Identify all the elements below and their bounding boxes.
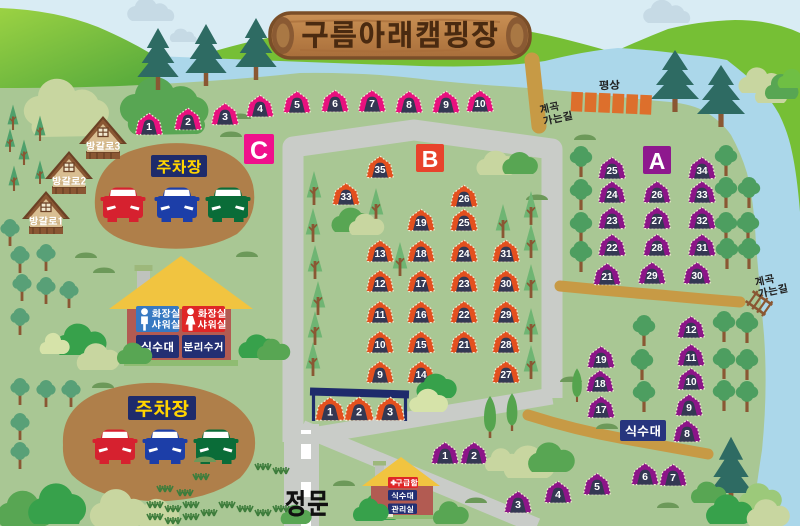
svg-text:26: 26 [458, 194, 470, 205]
svg-text:22: 22 [458, 310, 470, 321]
svg-text:17: 17 [595, 405, 607, 416]
svg-text:11: 11 [686, 353, 697, 364]
svg-text:18: 18 [594, 379, 606, 390]
svg-text:1: 1 [327, 406, 333, 418]
svg-text:19: 19 [415, 218, 427, 229]
svg-text:13: 13 [374, 249, 386, 260]
svg-text:7: 7 [670, 472, 676, 484]
svg-text:27: 27 [651, 216, 663, 227]
svg-text:6: 6 [332, 98, 338, 110]
svg-text:9: 9 [377, 369, 383, 381]
svg-text:10: 10 [374, 340, 386, 351]
svg-text:35: 35 [374, 165, 386, 176]
svg-text:2: 2 [185, 116, 191, 128]
svg-text:5: 5 [594, 481, 600, 493]
svg-text:24: 24 [606, 190, 618, 201]
svg-text:8: 8 [684, 428, 690, 440]
svg-text:10: 10 [474, 99, 486, 110]
svg-text:15: 15 [415, 340, 427, 351]
svg-text:23: 23 [606, 216, 618, 227]
svg-text:9: 9 [686, 402, 692, 414]
svg-text:31: 31 [696, 243, 708, 254]
svg-text:8: 8 [406, 99, 412, 111]
svg-text:A: A [649, 148, 666, 174]
svg-text:28: 28 [500, 340, 512, 351]
svg-text:29: 29 [500, 310, 512, 321]
svg-text:4: 4 [555, 489, 561, 501]
svg-text:11: 11 [375, 310, 386, 321]
svg-text:33: 33 [696, 190, 708, 201]
svg-text:21: 21 [601, 272, 613, 283]
svg-text:2: 2 [356, 406, 362, 418]
svg-text:24: 24 [458, 249, 470, 260]
svg-text:3: 3 [515, 499, 521, 511]
svg-text:9: 9 [443, 99, 449, 111]
svg-text:34: 34 [696, 166, 708, 177]
svg-text:25: 25 [606, 166, 618, 177]
svg-text:30: 30 [691, 271, 703, 282]
svg-text:B: B [422, 146, 439, 172]
svg-text:6: 6 [642, 471, 648, 483]
svg-text:10: 10 [685, 377, 697, 388]
svg-text:7: 7 [369, 98, 375, 110]
svg-text:1: 1 [442, 450, 448, 462]
svg-text:12: 12 [374, 279, 386, 290]
svg-text:2: 2 [471, 450, 477, 462]
svg-text:27: 27 [500, 370, 512, 381]
svg-text:12: 12 [685, 325, 697, 336]
svg-text:3: 3 [387, 406, 393, 418]
svg-text:23: 23 [458, 279, 470, 290]
svg-text:26: 26 [651, 190, 663, 201]
svg-text:16: 16 [415, 310, 427, 321]
svg-text:1: 1 [146, 121, 152, 133]
svg-text:19: 19 [595, 355, 607, 366]
svg-text:28: 28 [651, 243, 663, 254]
svg-text:33: 33 [340, 192, 352, 203]
svg-text:3: 3 [222, 111, 228, 123]
svg-text:C: C [250, 137, 268, 165]
svg-text:17: 17 [415, 279, 427, 290]
svg-text:21: 21 [458, 340, 470, 351]
svg-text:30: 30 [500, 279, 512, 290]
svg-text:31: 31 [500, 249, 512, 260]
svg-text:22: 22 [606, 243, 618, 254]
svg-text:4: 4 [257, 103, 263, 115]
svg-text:18: 18 [415, 249, 427, 260]
svg-text:25: 25 [458, 218, 470, 229]
svg-text:29: 29 [646, 271, 658, 282]
svg-text:5: 5 [294, 99, 300, 111]
svg-text:32: 32 [696, 216, 708, 227]
